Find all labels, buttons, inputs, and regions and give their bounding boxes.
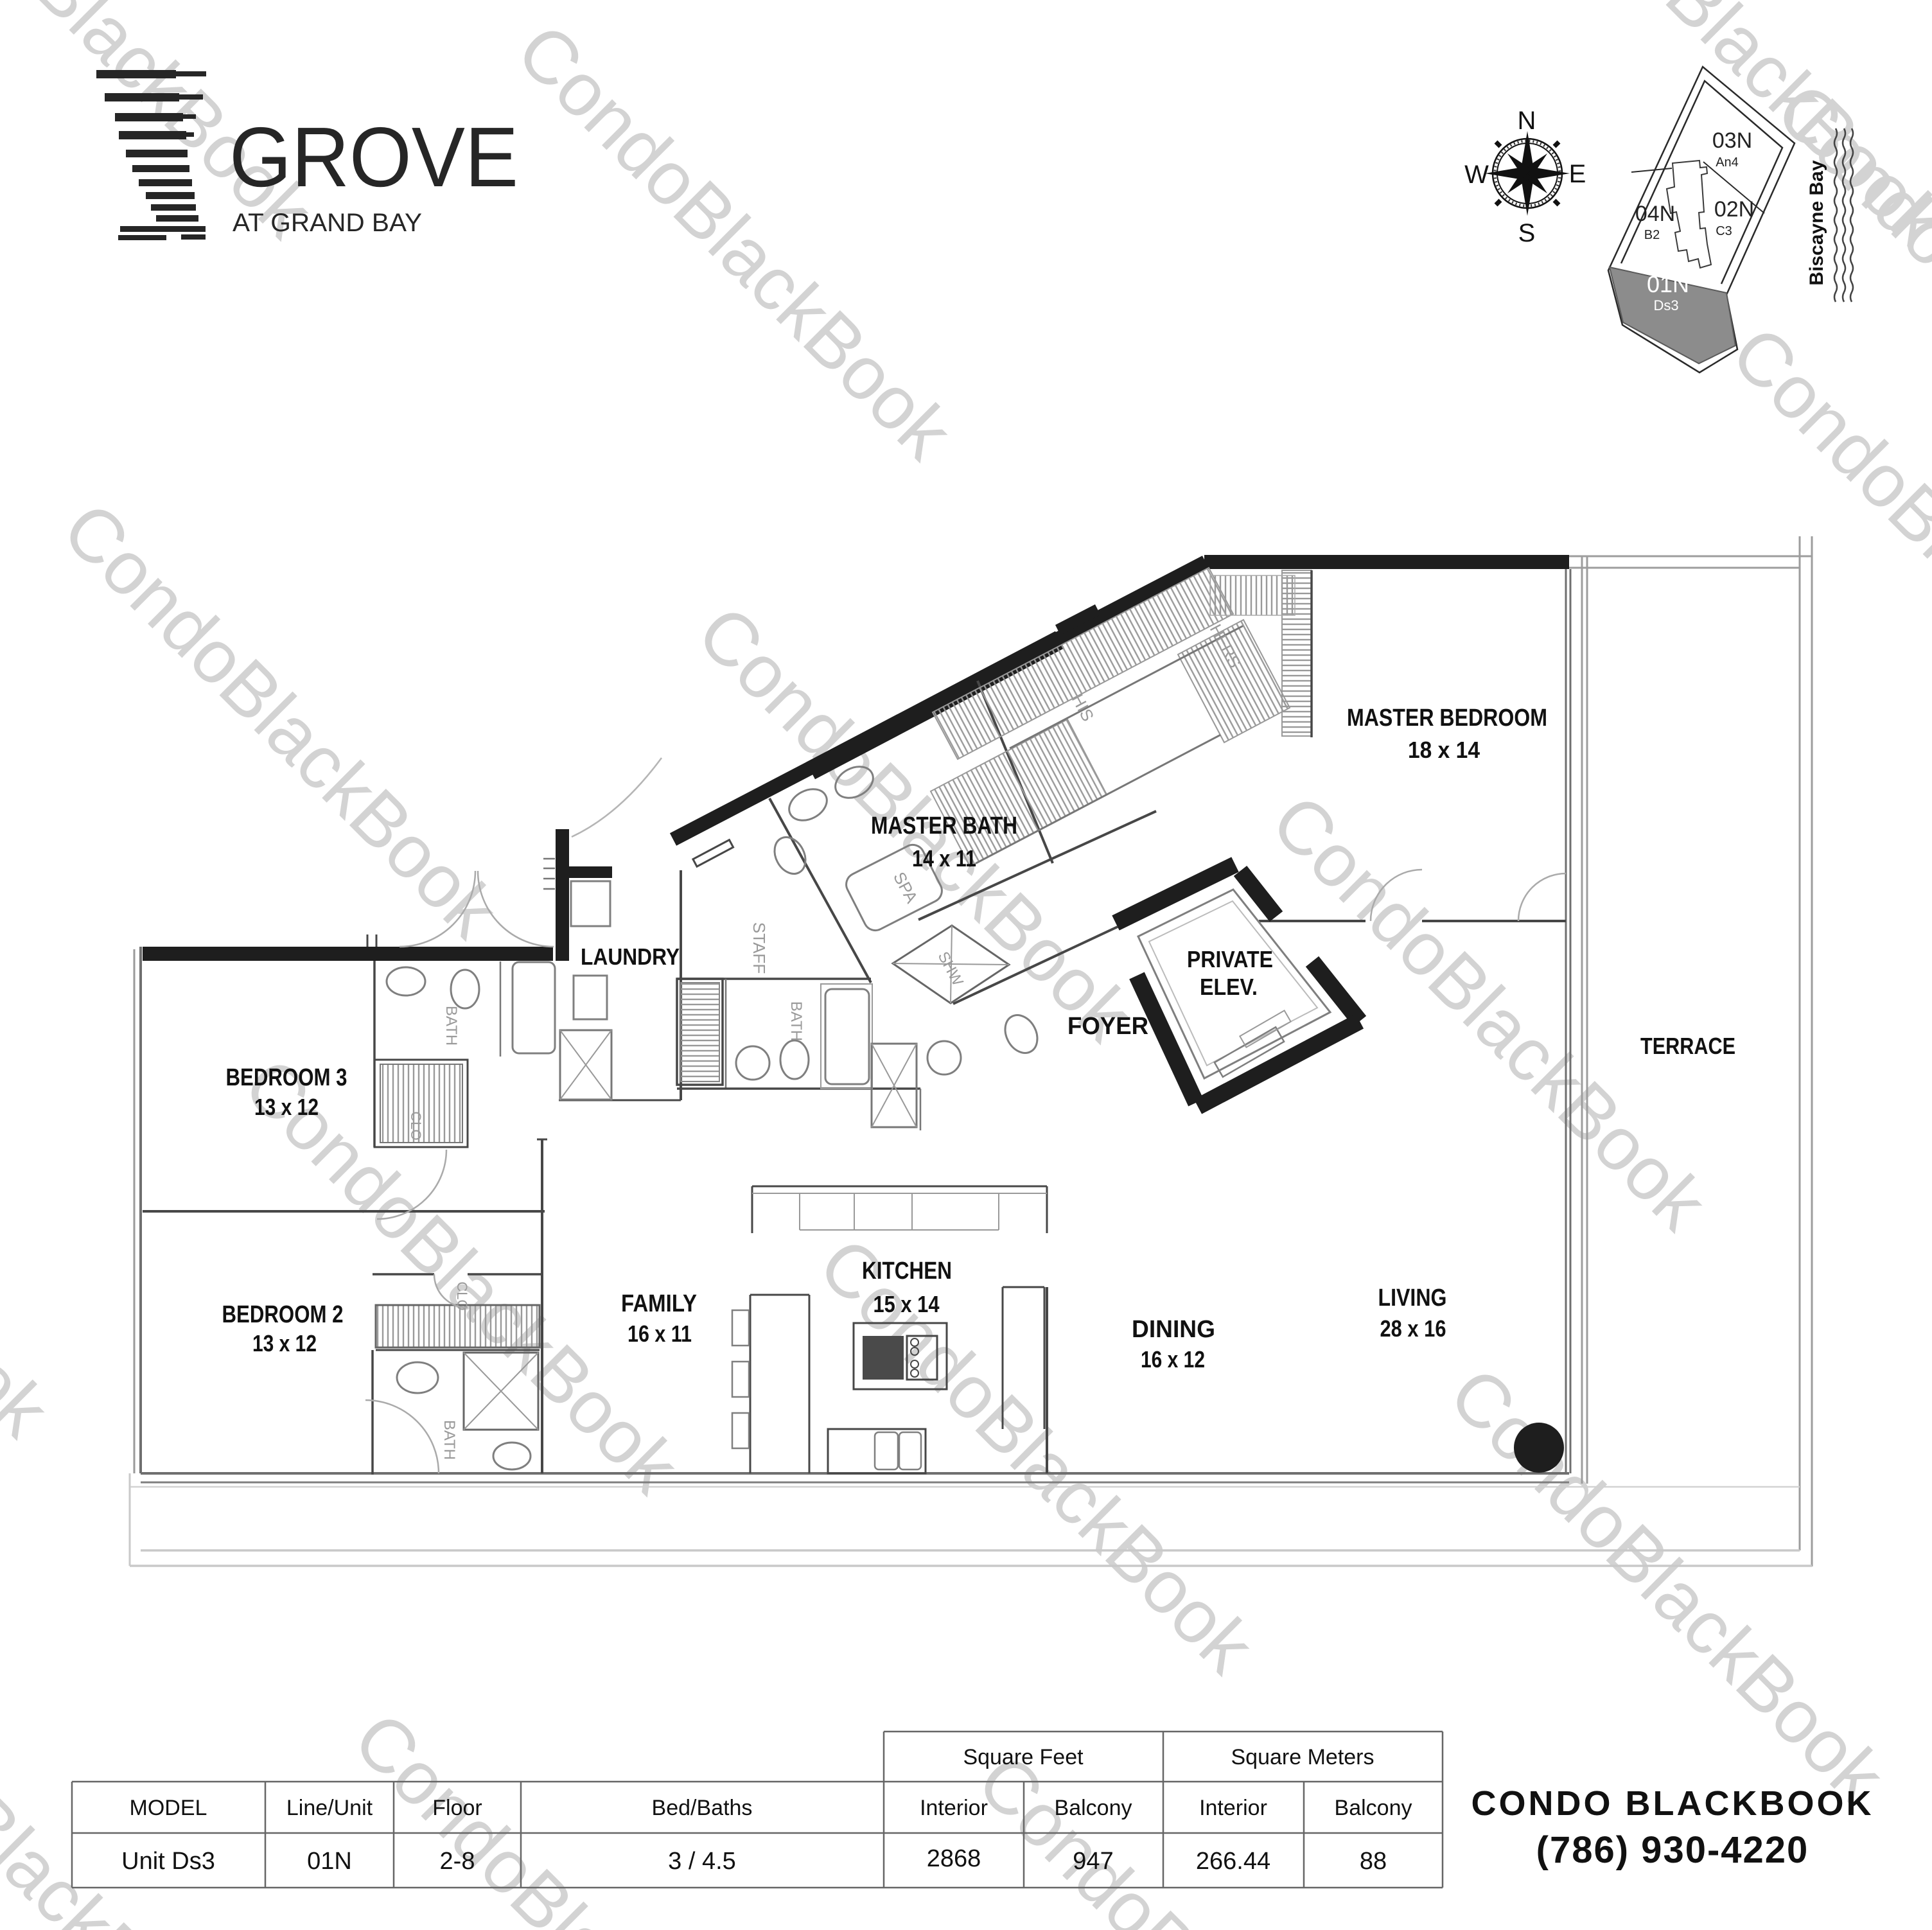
- svg-text:DINING: DINING: [1132, 1316, 1215, 1343]
- svg-text:CONDO BLACKBOOK: CONDO BLACKBOOK: [1471, 1784, 1874, 1823]
- svg-text:Balcony: Balcony: [1055, 1796, 1132, 1820]
- svg-text:B2: B2: [1644, 228, 1660, 242]
- svg-text:MODEL: MODEL: [130, 1796, 207, 1820]
- svg-text:BEDROOM 3: BEDROOM 3: [226, 1064, 347, 1091]
- svg-text:FOYER: FOYER: [1067, 1013, 1148, 1040]
- svg-text:GROVE: GROVE: [229, 110, 518, 204]
- svg-text:2-8: 2-8: [440, 1848, 475, 1875]
- svg-text:CondoBlackBook: CondoBlackBook: [1716, 310, 1932, 778]
- svg-text:Balcony: Balcony: [1335, 1796, 1412, 1820]
- svg-text:02N: 02N: [1714, 197, 1754, 222]
- svg-text:S: S: [1518, 219, 1536, 247]
- svg-text:TERRACE: TERRACE: [1640, 1033, 1735, 1059]
- svg-text:CondoBlackBook: CondoBlackBook: [1434, 1351, 1901, 1819]
- svg-text:CondoBlackBook: CondoBlackBook: [0, 985, 66, 1453]
- svg-text:ELEV.: ELEV.: [1200, 974, 1258, 1000]
- svg-text:STAFF: STAFF: [750, 922, 769, 974]
- svg-text:BEDROOM 2: BEDROOM 2: [222, 1301, 344, 1328]
- svg-text:Interior: Interior: [1199, 1796, 1267, 1820]
- svg-text:Unit Ds3: Unit Ds3: [121, 1848, 215, 1875]
- svg-text:CondoBlackBook: CondoBlackBook: [501, 8, 969, 475]
- svg-text:13 x 12: 13 x 12: [252, 1330, 317, 1356]
- svg-text:16 x 12: 16 x 12: [1141, 1346, 1205, 1373]
- svg-text:BATH: BATH: [441, 1420, 458, 1460]
- svg-text:FAMILY: FAMILY: [621, 1290, 697, 1317]
- svg-text:BATH: BATH: [787, 1001, 805, 1041]
- svg-text:An4: An4: [1716, 155, 1739, 170]
- svg-text:Bed/Baths: Bed/Baths: [652, 1796, 753, 1820]
- svg-text:16 x 11: 16 x 11: [628, 1320, 692, 1347]
- svg-text:Line/Unit: Line/Unit: [286, 1796, 373, 1820]
- svg-text:18 x 14: 18 x 14: [1408, 737, 1480, 763]
- svg-text:266.44: 266.44: [1196, 1848, 1270, 1875]
- svg-text:Square Feet: Square Feet: [963, 1745, 1084, 1769]
- svg-text:AT GRAND BAY: AT GRAND BAY: [233, 209, 422, 237]
- svg-text:MASTER BATH: MASTER BATH: [871, 812, 1017, 839]
- svg-text:W: W: [1464, 161, 1489, 189]
- svg-text:3 / 4.5: 3 / 4.5: [668, 1848, 736, 1875]
- svg-text:01N: 01N: [307, 1848, 352, 1875]
- svg-text:2868: 2868: [927, 1845, 981, 1872]
- svg-text:Floor: Floor: [432, 1796, 482, 1820]
- svg-text:15 x 14: 15 x 14: [874, 1291, 940, 1317]
- svg-text:13 x 12: 13 x 12: [254, 1094, 319, 1120]
- svg-text:03N: 03N: [1712, 128, 1752, 153]
- svg-text:04N: 04N: [1635, 202, 1675, 226]
- svg-text:PRIVATE: PRIVATE: [1187, 946, 1273, 972]
- svg-text:LIVING: LIVING: [1378, 1285, 1447, 1312]
- svg-text:Square Meters: Square Meters: [1231, 1745, 1374, 1769]
- svg-text:BATH: BATH: [443, 1006, 460, 1046]
- svg-text:MASTER BEDROOM: MASTER BEDROOM: [1347, 705, 1547, 732]
- svg-text:N: N: [1518, 107, 1536, 135]
- svg-text:01N: 01N: [1647, 271, 1689, 297]
- svg-text:88: 88: [1360, 1848, 1387, 1875]
- svg-text:Biscayne Bay: Biscayne Bay: [1806, 160, 1827, 285]
- svg-text:CondoBlackBook: CondoBlackBook: [0, 1620, 252, 1930]
- svg-text:KITCHEN: KITCHEN: [862, 1258, 952, 1285]
- svg-text:CLO: CLO: [408, 1111, 424, 1140]
- svg-text:LAUNDRY: LAUNDRY: [581, 943, 680, 970]
- svg-text:E: E: [1569, 160, 1586, 188]
- svg-text:Interior: Interior: [920, 1796, 988, 1820]
- svg-text:SHW: SHW: [935, 949, 967, 988]
- svg-text:C3: C3: [1716, 224, 1732, 238]
- svg-text:CondoBlackBook: CondoBlackBook: [1256, 778, 1723, 1246]
- svg-text:CondoBlackBook: CondoBlackBook: [47, 486, 514, 954]
- svg-text:Ds3: Ds3: [1653, 297, 1678, 313]
- svg-text:14 x 11: 14 x 11: [912, 845, 976, 872]
- svg-text:947: 947: [1073, 1848, 1113, 1875]
- svg-text:28 x 16: 28 x 16: [1380, 1315, 1446, 1342]
- svg-text:(786) 930-4220: (786) 930-4220: [1536, 1829, 1809, 1871]
